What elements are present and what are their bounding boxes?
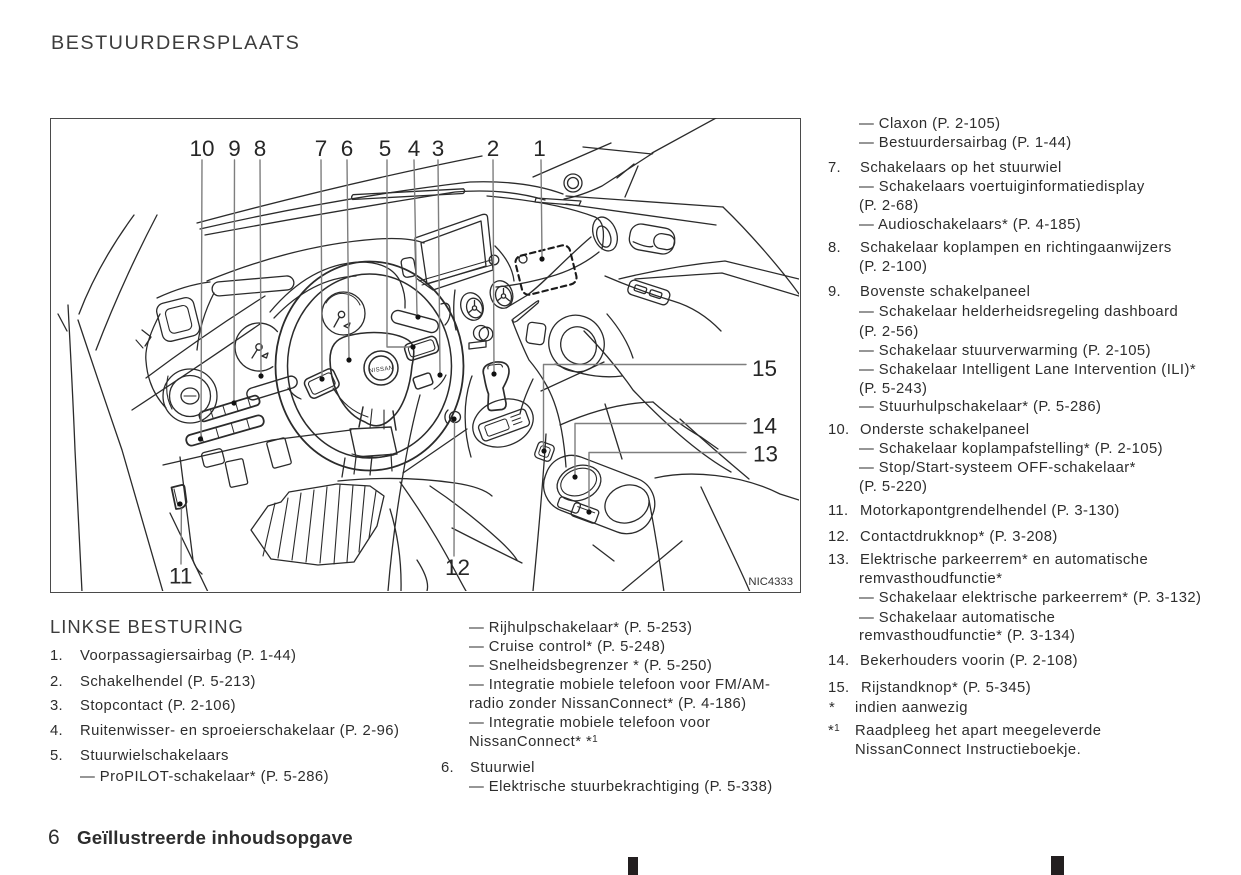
svg-text:7: 7 — [315, 136, 328, 161]
svg-text:13: 13 — [753, 442, 778, 467]
svg-text:4: 4 — [408, 136, 421, 161]
svg-text:5: 5 — [379, 136, 392, 161]
svg-text:2: 2 — [487, 136, 500, 161]
svg-text:15: 15 — [752, 356, 777, 381]
svg-text:6: 6 — [341, 136, 354, 161]
svg-text:10: 10 — [189, 136, 214, 161]
svg-text:NIC4333: NIC4333 — [748, 576, 793, 588]
svg-text:3: 3 — [432, 136, 445, 161]
svg-text:9: 9 — [228, 136, 241, 161]
svg-text:1: 1 — [533, 136, 546, 161]
svg-text:11: 11 — [169, 564, 192, 589]
svg-text:14: 14 — [752, 414, 777, 439]
svg-text:12: 12 — [445, 555, 470, 580]
svg-text:NISSAN: NISSAN — [369, 365, 394, 374]
svg-text:8: 8 — [254, 136, 267, 161]
